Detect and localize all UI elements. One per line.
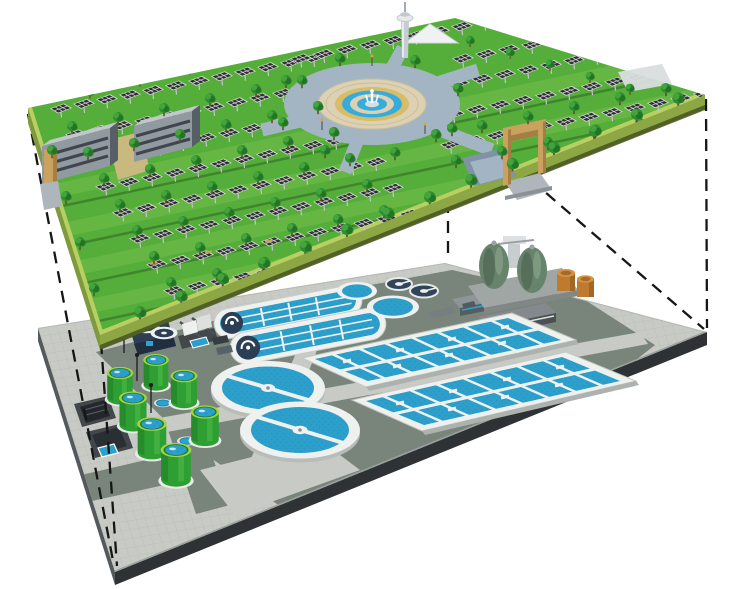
scene-stage: Cutaway rendering: solar-panel park on t…: [0, 0, 740, 589]
cutaway-illustration: Cutaway rendering: solar-panel park on t…: [0, 0, 740, 589]
clarifier-2: [240, 402, 360, 463]
connector-right-vertical: [706, 99, 707, 328]
